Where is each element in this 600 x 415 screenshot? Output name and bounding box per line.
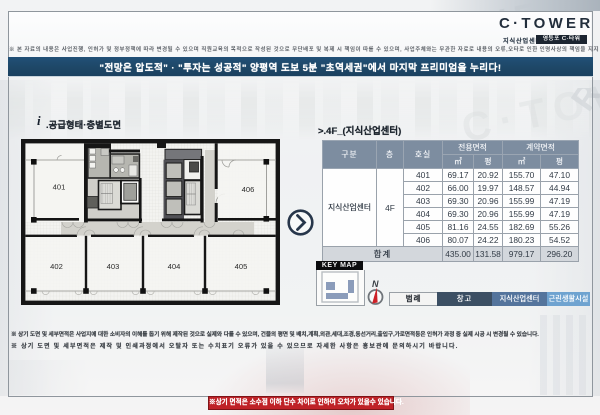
svg-text:405: 405 <box>235 262 248 271</box>
svg-text:N: N <box>372 279 379 289</box>
svg-text:401: 401 <box>53 183 66 192</box>
svg-text:402: 402 <box>50 262 63 271</box>
svg-text:404: 404 <box>168 262 181 271</box>
svg-text:403: 403 <box>107 262 120 271</box>
svg-text:406: 406 <box>242 185 255 194</box>
